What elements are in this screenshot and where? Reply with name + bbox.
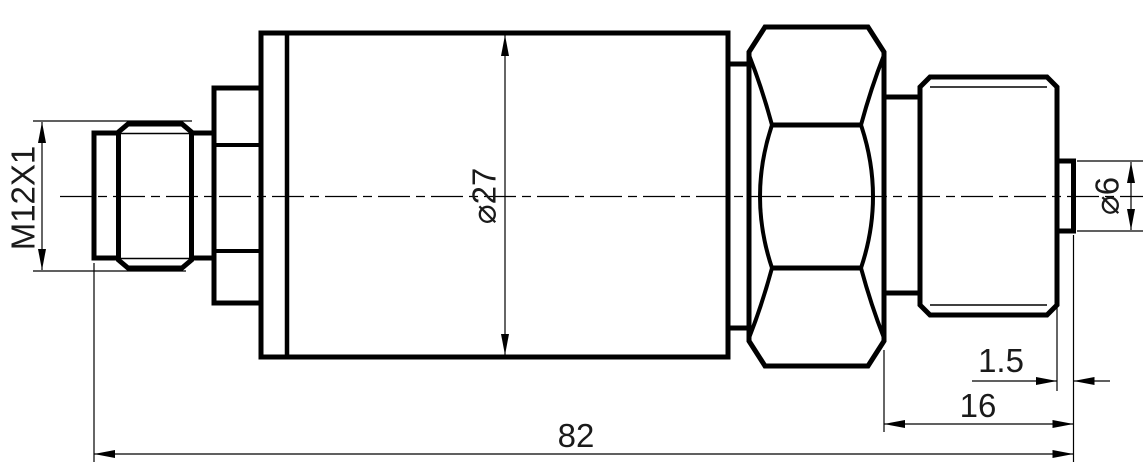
thread-spec-label: M12X1 xyxy=(5,146,42,251)
arrowhead-right xyxy=(1053,450,1074,458)
hex-facet-arc-bottom-left xyxy=(749,268,772,338)
connector-front-plug xyxy=(94,133,119,258)
arrowhead-up xyxy=(1127,162,1135,183)
port-length-label: 16 xyxy=(960,387,997,424)
arrowhead-down xyxy=(1127,209,1135,230)
arrowhead-left xyxy=(94,450,115,458)
arrowhead-right xyxy=(1053,420,1074,428)
arrowhead-down xyxy=(38,249,46,270)
pressure-inlet-stub xyxy=(1057,161,1074,231)
arrowhead-left xyxy=(884,420,905,428)
arrowhead-down xyxy=(501,334,509,355)
arrowhead-right xyxy=(1036,377,1057,385)
arrowhead-up xyxy=(501,35,509,56)
arrowhead-left xyxy=(1074,377,1095,385)
body-diameter-label: ⌀27 xyxy=(466,168,503,225)
tip-diameter-label: ⌀6 xyxy=(1089,177,1126,215)
overall-length-label: 82 xyxy=(558,417,595,454)
tip-length-label: 1.5 xyxy=(978,342,1024,379)
dim-overall-length: 82 xyxy=(94,263,1074,462)
drawing-canvas: M12X1 ⌀27 ⌀6 1.5 xyxy=(0,0,1148,469)
dim-tip-length: 1.5 xyxy=(972,235,1110,462)
technical-drawing-svg: M12X1 ⌀27 ⌀6 1.5 xyxy=(0,0,1148,469)
hex-facet-arc-bottom-right xyxy=(861,268,884,338)
arrowhead-up xyxy=(38,122,46,143)
step-flange xyxy=(214,88,261,303)
hex-facet-arc-top-left xyxy=(749,55,772,125)
connector-ring xyxy=(192,133,215,258)
dim-body-diameter: ⌀27 xyxy=(466,35,509,355)
hex-facet-arc-top-right xyxy=(861,55,884,125)
